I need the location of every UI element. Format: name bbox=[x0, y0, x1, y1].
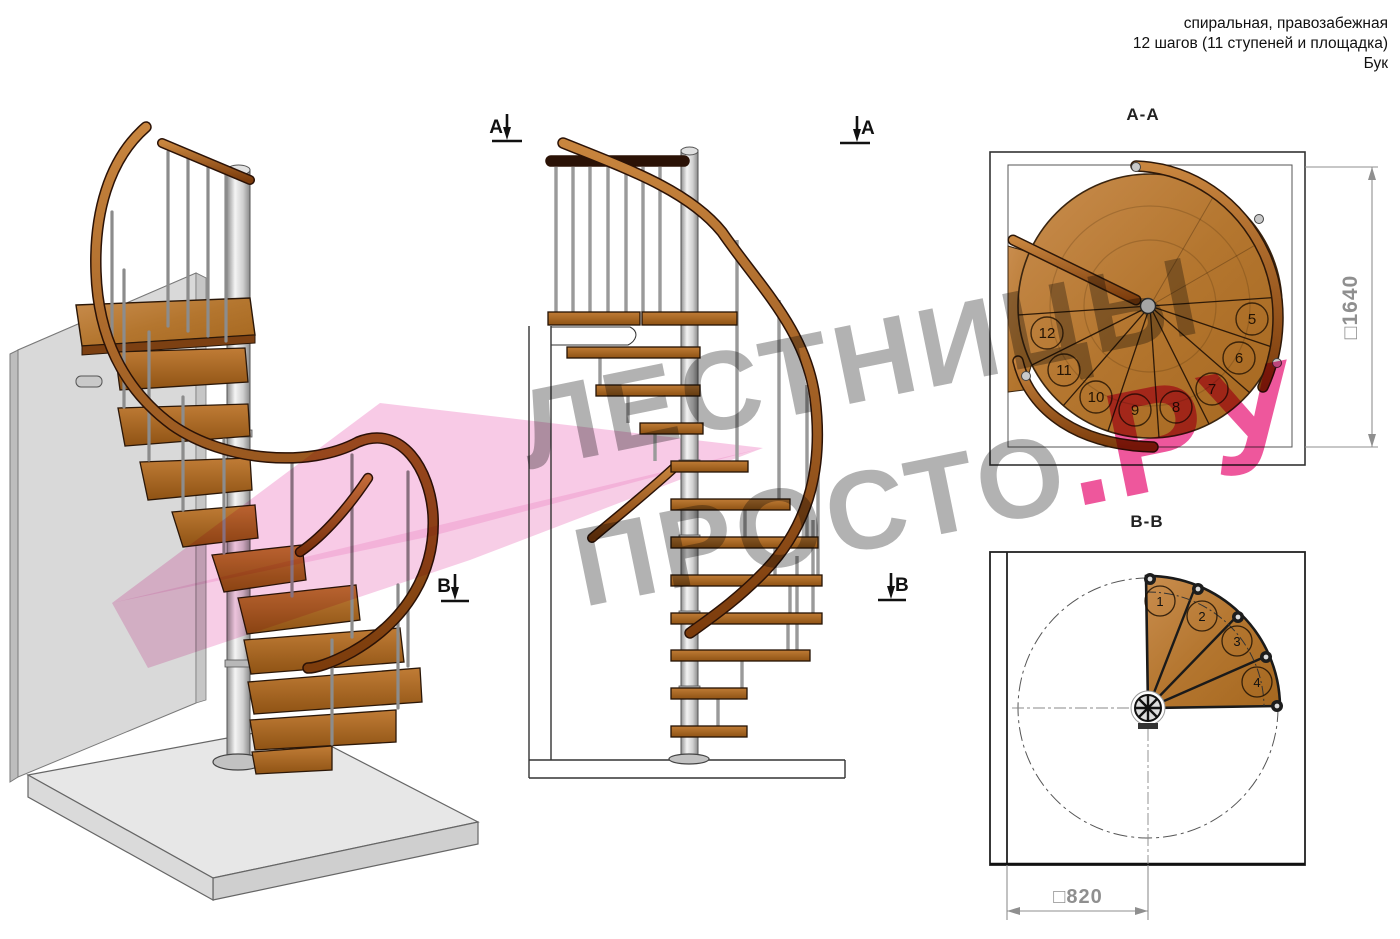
page: А А В В bbox=[0, 0, 1400, 939]
bb-centerlines bbox=[1012, 708, 1148, 864]
bb-pole-bracket bbox=[1138, 723, 1158, 729]
aa-step-8: 8 bbox=[1172, 399, 1180, 416]
marker-a-left: А bbox=[489, 114, 522, 141]
aa-dimension-label: □1640 bbox=[1339, 275, 1362, 339]
bb-step-2: 2 bbox=[1198, 609, 1205, 624]
bb-dimension: □820 bbox=[1007, 865, 1148, 920]
aa-step-10: 10 bbox=[1088, 389, 1105, 406]
marker-b-left: В bbox=[437, 574, 469, 601]
marker-a-right-label: А bbox=[861, 118, 875, 139]
bb-step-1: 1 bbox=[1156, 594, 1163, 609]
tread bbox=[250, 710, 396, 750]
aa-step-5: 5 bbox=[1248, 311, 1256, 328]
section-bb-title: В-В bbox=[1130, 512, 1163, 531]
aa-pole-ball bbox=[1141, 299, 1156, 314]
wall-bracket bbox=[76, 376, 102, 387]
aa-step-7: 7 bbox=[1208, 381, 1216, 398]
spec-type: спиральная, правозабежная bbox=[1133, 14, 1388, 34]
marker-a-left-label: А bbox=[489, 117, 503, 138]
spec-header: спиральная, правозабежная 12 шагов (11 с… bbox=[1133, 14, 1388, 74]
marker-b-right-label: В bbox=[895, 575, 909, 596]
spec-steps: 12 шагов (11 ступеней и площадка) bbox=[1133, 34, 1388, 54]
view-3d bbox=[10, 127, 763, 900]
wall-side-face bbox=[10, 350, 18, 782]
marker-a-right: А bbox=[840, 116, 875, 143]
staircase-drawing: А А В В bbox=[0, 0, 1400, 939]
marker-b-left-label: В bbox=[437, 576, 451, 597]
aa-step-6: 6 bbox=[1235, 350, 1243, 367]
spec-material: Бук bbox=[1133, 54, 1388, 74]
bb-dimension-label: □820 bbox=[1053, 886, 1102, 908]
aa-dimension: □1640 bbox=[1305, 167, 1378, 447]
section-aa-title: А-А bbox=[1126, 105, 1159, 124]
aa-step-9: 9 bbox=[1131, 402, 1139, 419]
marker-b-right: В bbox=[878, 573, 909, 600]
section-bb: В-В bbox=[990, 512, 1305, 920]
tread bbox=[248, 668, 422, 714]
bb-step-3: 3 bbox=[1233, 634, 1240, 649]
bb-step-4: 4 bbox=[1253, 675, 1260, 690]
section-aa: А-А bbox=[990, 105, 1378, 465]
pole-base-flange bbox=[669, 754, 709, 764]
aa-step-12: 12 bbox=[1039, 325, 1056, 342]
pole-elevation-cap bbox=[681, 147, 698, 155]
aa-step-11: 11 bbox=[1056, 362, 1072, 379]
landing-rail-3d bbox=[162, 143, 250, 180]
pole-elevation bbox=[681, 150, 698, 760]
